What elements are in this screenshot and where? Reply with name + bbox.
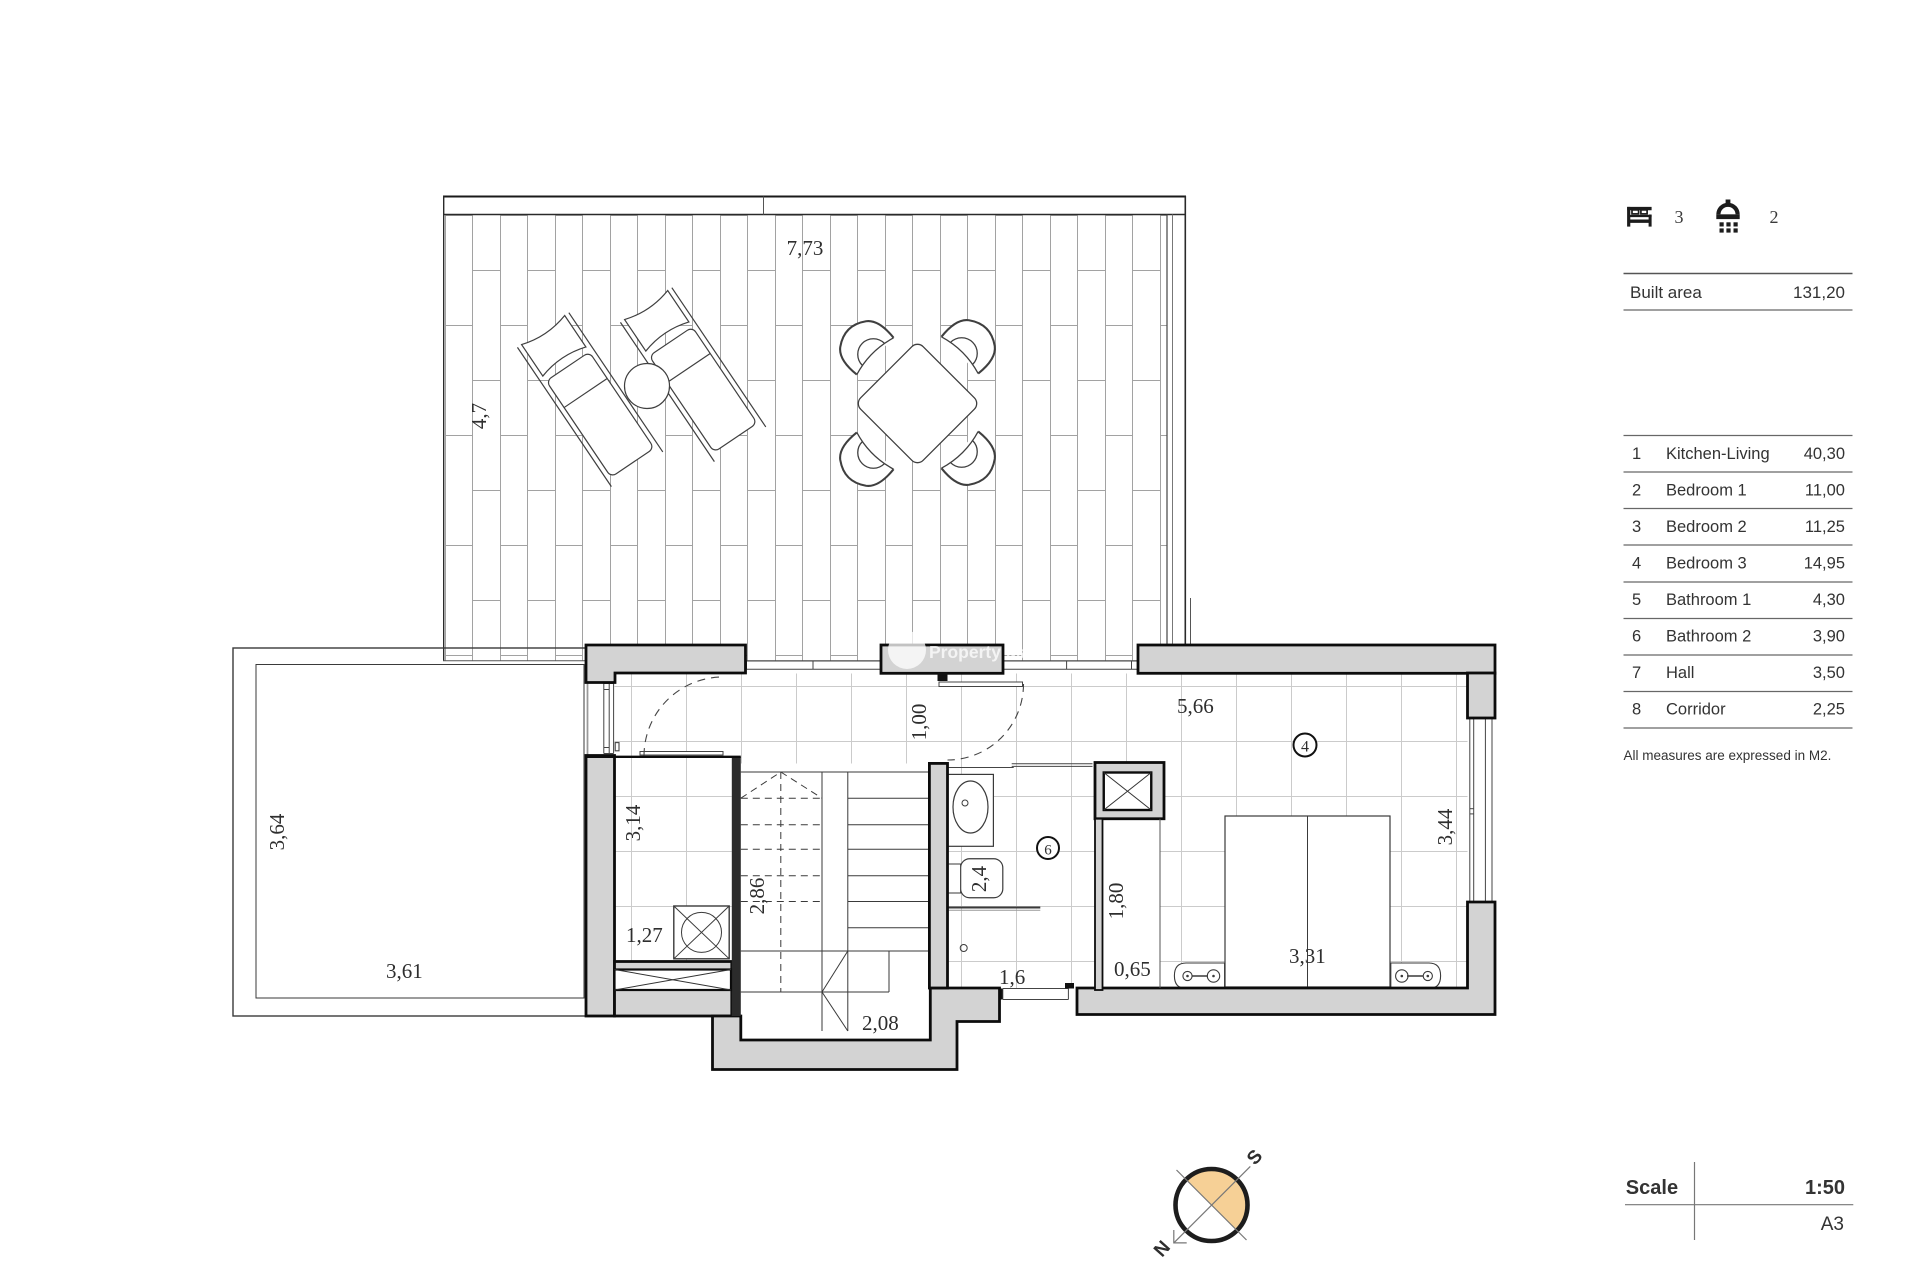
svg-text:1,00: 1,00 — [907, 704, 931, 741]
svg-text:3,31: 3,31 — [1289, 944, 1326, 968]
svg-text:Bathroom 2: Bathroom 2 — [1666, 628, 1751, 646]
svg-text:Hall: Hall — [1666, 664, 1694, 682]
svg-text:Bedroom 3: Bedroom 3 — [1666, 555, 1747, 573]
svg-text:Scale: Scale — [1626, 1177, 1678, 1199]
svg-text:Bathroom 1: Bathroom 1 — [1666, 591, 1751, 609]
svg-text:3,50: 3,50 — [1813, 664, 1845, 682]
svg-text:7,73: 7,73 — [787, 236, 824, 260]
svg-text:3,90: 3,90 — [1813, 628, 1845, 646]
svg-text:Bedroom 2: Bedroom 2 — [1666, 518, 1747, 536]
svg-text:3: 3 — [1632, 518, 1641, 536]
svg-text:1:50: 1:50 — [1805, 1177, 1845, 1199]
svg-text:3: 3 — [1675, 207, 1684, 227]
svg-text:0,65: 0,65 — [1114, 957, 1151, 981]
svg-text:4: 4 — [1301, 739, 1309, 756]
svg-text:5: 5 — [1632, 591, 1641, 609]
svg-text:2: 2 — [1770, 207, 1779, 227]
svg-text:Bedroom 1: Bedroom 1 — [1666, 482, 1747, 500]
svg-text:3,44: 3,44 — [1433, 808, 1457, 845]
svg-text:3,14: 3,14 — [621, 804, 645, 841]
svg-text:All measures are expressed in: All measures are expressed in M2. — [1624, 748, 1832, 763]
svg-text:Property Mar: Property Mar — [929, 642, 1037, 662]
svg-text:N: N — [1150, 1237, 1175, 1261]
svg-text:Kitchen-Living: Kitchen-Living — [1666, 445, 1770, 463]
svg-text:2,08: 2,08 — [862, 1011, 899, 1035]
svg-text:5,66: 5,66 — [1177, 694, 1214, 718]
svg-text:6: 6 — [1632, 628, 1641, 646]
svg-text:131,20: 131,20 — [1793, 283, 1845, 302]
svg-text:Built area: Built area — [1630, 283, 1702, 302]
svg-text:2,86: 2,86 — [745, 878, 769, 915]
svg-text:8: 8 — [1632, 701, 1641, 719]
svg-text:7: 7 — [1632, 664, 1641, 682]
svg-text:11,25: 11,25 — [1805, 518, 1845, 536]
svg-text:Corridor: Corridor — [1666, 701, 1726, 719]
svg-text:A3: A3 — [1821, 1214, 1844, 1235]
svg-text:2,4: 2,4 — [967, 865, 991, 892]
svg-text:1,6: 1,6 — [999, 965, 1025, 989]
svg-text:14,95: 14,95 — [1804, 555, 1845, 573]
svg-text:2: 2 — [1632, 482, 1641, 500]
svg-text:3,61: 3,61 — [386, 959, 423, 983]
svg-text:1: 1 — [1632, 445, 1641, 463]
svg-text:11,00: 11,00 — [1805, 482, 1845, 500]
svg-text:S: S — [1243, 1146, 1267, 1169]
svg-text:3,64: 3,64 — [265, 813, 289, 850]
svg-text:6: 6 — [1044, 843, 1052, 859]
svg-text:1,80: 1,80 — [1104, 883, 1128, 920]
svg-text:4,30: 4,30 — [1813, 591, 1845, 609]
svg-text:4: 4 — [1632, 555, 1641, 573]
svg-text:4,7: 4,7 — [467, 403, 491, 429]
svg-text:1,27: 1,27 — [626, 923, 663, 947]
svg-text:40,30: 40,30 — [1804, 445, 1845, 463]
svg-text:2,25: 2,25 — [1813, 701, 1845, 719]
